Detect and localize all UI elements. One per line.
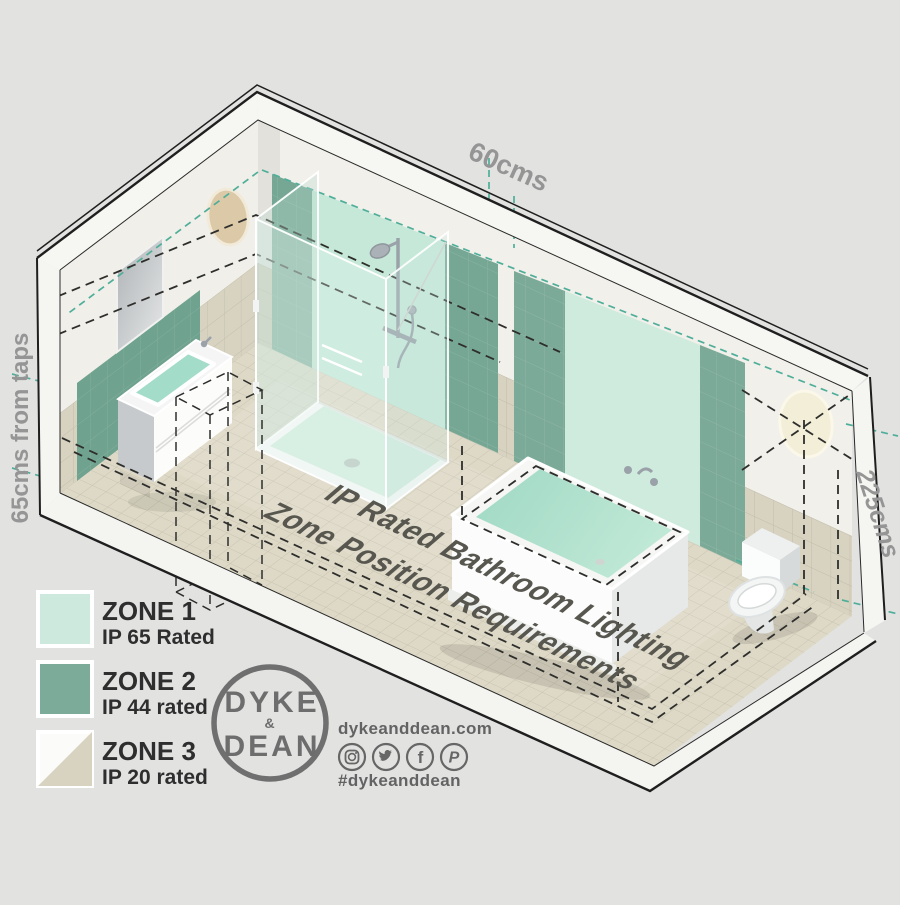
tub-tap bbox=[650, 478, 658, 486]
zone3-rating: IP 20 rated bbox=[102, 766, 208, 789]
infographic-canvas: 60cms 65cms from taps 225cms IP Rated Ba… bbox=[0, 0, 900, 900]
hashtag: #dykeanddean bbox=[338, 771, 461, 790]
legend-item-zone2: ZONE 2 IP 44 rated bbox=[38, 662, 208, 719]
zone2-label: ZONE 2 bbox=[102, 666, 196, 696]
glass-pane-right bbox=[386, 232, 448, 509]
pinterest-glyph: P bbox=[449, 750, 460, 767]
glass-hinge bbox=[253, 300, 259, 312]
legend-item-zone1: ZONE 1 IP 65 Rated bbox=[38, 592, 215, 649]
zone3-label: ZONE 3 bbox=[102, 736, 196, 766]
zone2-panel-bath-left bbox=[514, 271, 565, 484]
logo-dean: DEAN bbox=[223, 730, 320, 763]
zone2-panel-shower-right bbox=[445, 243, 498, 453]
zone1-rating: IP 65 Rated bbox=[102, 626, 215, 649]
legend: ZONE 1 IP 65 Rated ZONE 2 IP 44 rated ZO… bbox=[38, 592, 215, 789]
glass-hinge bbox=[383, 366, 389, 378]
bathroom-zones-diagram: 60cms 65cms from taps 225cms IP Rated Ba… bbox=[0, 0, 900, 900]
legend-item-zone3: ZONE 3 IP 20 rated bbox=[38, 732, 208, 789]
dim-left-label: 65cms from taps bbox=[7, 333, 34, 524]
zone1-label: ZONE 1 bbox=[102, 596, 196, 626]
facebook-glyph: f bbox=[418, 748, 424, 767]
zone1-swatch bbox=[38, 592, 92, 646]
logo-ampersand: & bbox=[264, 715, 277, 731]
tub-tap bbox=[624, 466, 632, 474]
zone2-rating: IP 44 rated bbox=[102, 696, 208, 719]
zone2-panel-bath-right bbox=[700, 345, 745, 567]
zone2-swatch bbox=[38, 662, 92, 716]
website-url: dykeanddean.com bbox=[338, 719, 492, 738]
